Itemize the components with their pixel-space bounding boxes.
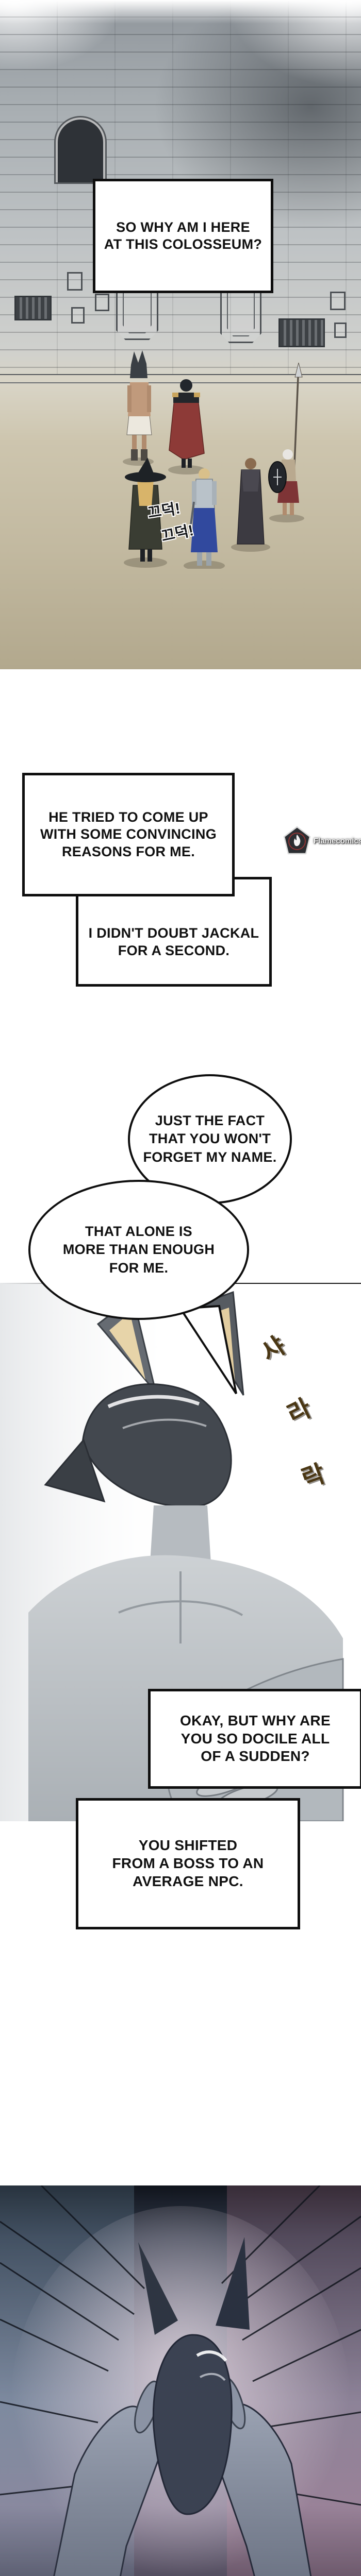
speech-bubble-enough: THAT ALONE IS MORE THAN ENOUGH FOR ME. [28, 1180, 249, 1320]
spear-warrior-figure [269, 363, 302, 515]
caption-box-shifted: YOU SHIFTED FROM A BOSS TO AN AVERAGE NP… [76, 1798, 300, 1929]
bubble-text: THAT ALONE IS [85, 1223, 192, 1241]
wall-window [67, 272, 83, 291]
caption-text: YOU SO DOCILE ALL [181, 1730, 330, 1748]
wall-window [71, 307, 85, 324]
arched-doorway [56, 117, 105, 182]
caption-box-reasons: HE TRIED TO COME UP WITH SOME CONVINCING… [22, 773, 235, 896]
caption-text: FOR A SECOND. [118, 942, 229, 959]
caption-text: YOU SHIFTED [139, 1837, 238, 1855]
watermark-text: Flamecomics.com [314, 837, 361, 845]
comic-strip-page: SO WHY AM I HERE AT THIS COLOSSEUM? 끄덕! … [0, 0, 361, 2576]
red-cape-commander-figure [169, 379, 204, 468]
jackal-npc-figure [127, 350, 152, 461]
caption-text: HE TRIED TO COME UP [48, 809, 208, 826]
bubble-text: JUST THE FACT [155, 1112, 265, 1130]
caption-text: REASONS FOR ME. [62, 843, 195, 860]
wall-vent [278, 318, 325, 347]
caption-text: FROM A BOSS TO AN [112, 1855, 264, 1873]
robed-traveler-figure [237, 458, 264, 544]
wall-window [95, 294, 109, 311]
bubble-text: FOR ME. [109, 1259, 169, 1277]
bubble-text: MORE THAN ENOUGH [63, 1241, 215, 1259]
wall-window [330, 292, 346, 310]
panel-jackal-despair [0, 2185, 361, 2576]
caption-text: SO WHY AM I HERE [116, 219, 250, 236]
wall-vent [14, 296, 52, 320]
wall-window [334, 323, 347, 338]
bubble-text: FORGET MY NAME. [143, 1148, 276, 1166]
caption-box-colosseum: SO WHY AM I HERE AT THIS COLOSSEUM? [93, 179, 273, 293]
panel-colosseum-arena [0, 0, 361, 669]
caption-text: OKAY, BUT WHY ARE [180, 1712, 331, 1730]
flame-icon [283, 826, 311, 856]
knight-figure [190, 468, 218, 566]
caption-text: I DIDN'T DOUBT JACKAL [89, 925, 259, 942]
caption-text: OF A SUDDEN? [201, 1748, 310, 1766]
caption-text: AT THIS COLOSSEUM? [104, 236, 262, 253]
caption-box-docile: OKAY, BUT WHY ARE YOU SO DOCILE ALL OF A… [148, 1689, 361, 1789]
watermark-flamecomics: Flamecomics.com [283, 826, 361, 856]
caption-text: AVERAGE NPC. [133, 1873, 243, 1891]
caption-text: WITH SOME CONVINCING [40, 826, 217, 843]
bubble-text: THAT YOU WON'T [149, 1130, 271, 1148]
